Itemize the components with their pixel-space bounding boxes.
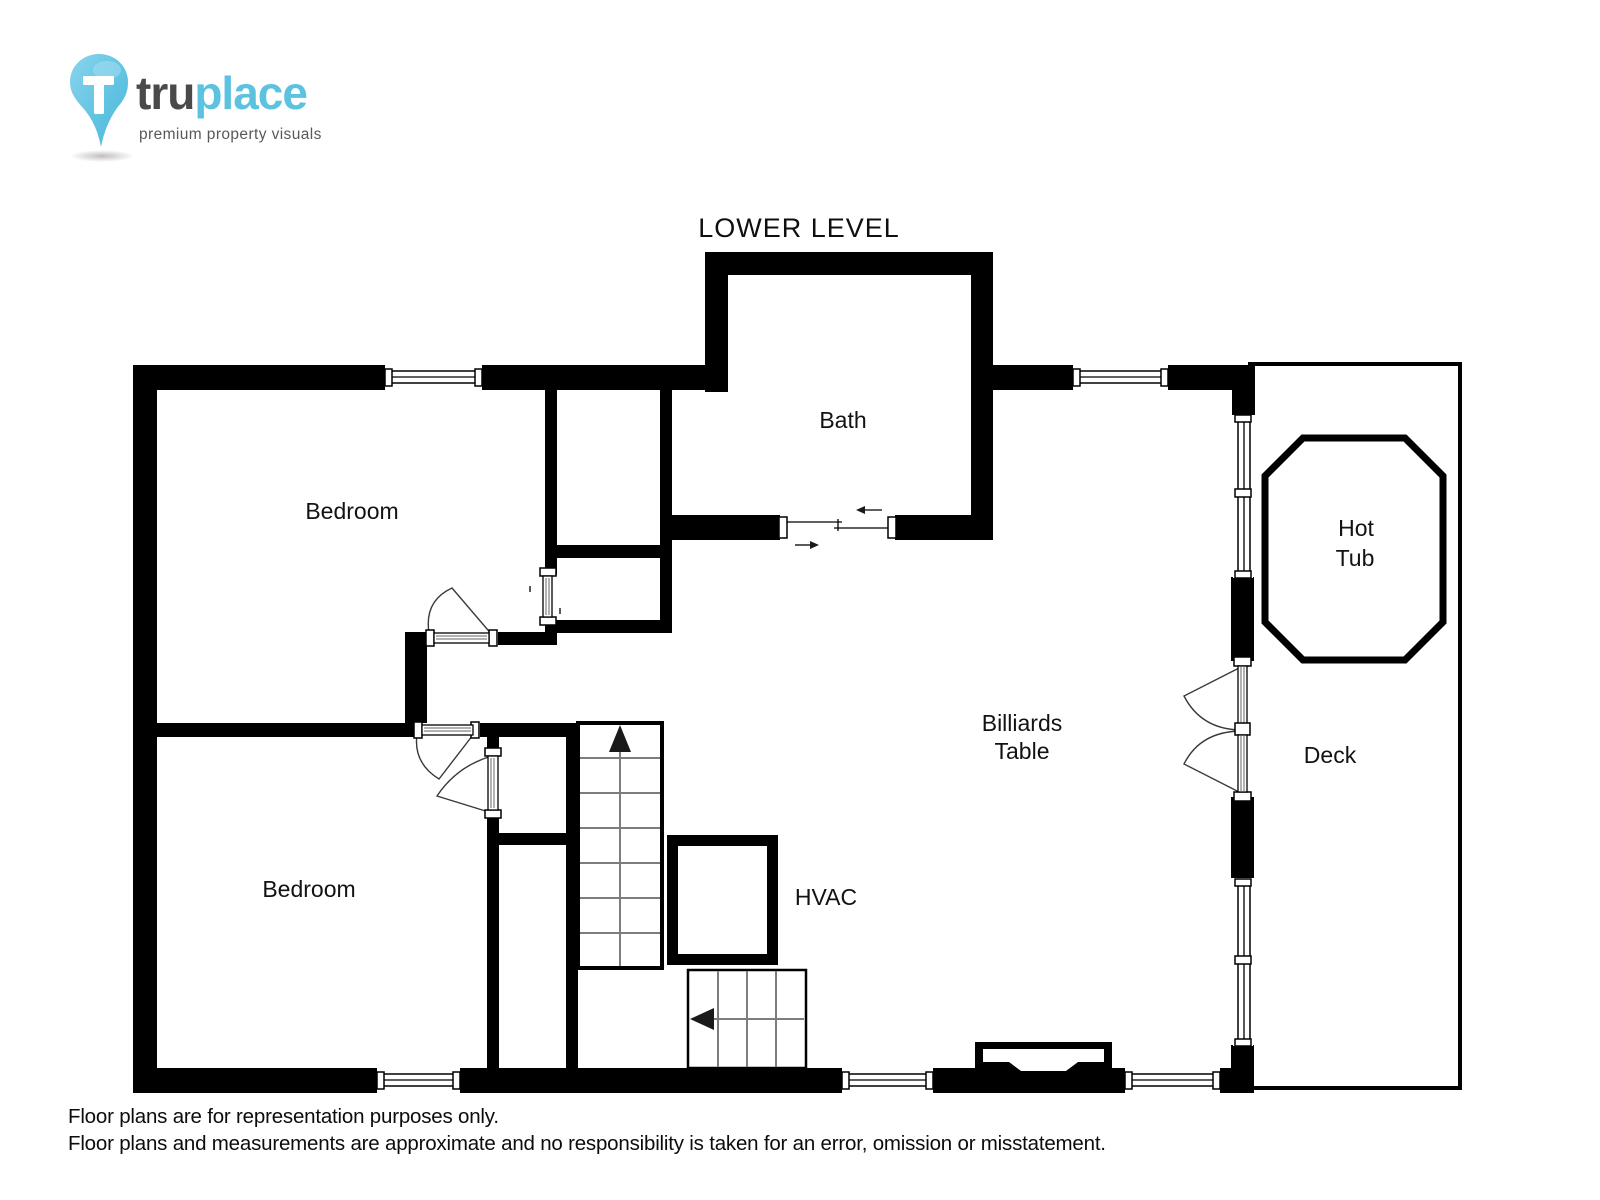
bath-sliding-door [779, 506, 896, 549]
disclaimer-line2: Floor plans and measurements are approxi… [68, 1130, 1106, 1157]
truplace-logo: truplace premium property visuals [64, 50, 484, 170]
door-closet-upper [530, 568, 560, 625]
window [1073, 366, 1168, 389]
window [1125, 1069, 1220, 1092]
room-label-billiards-line2: Table [995, 738, 1050, 764]
brand-part-tru: tru [136, 67, 194, 119]
door-closet-lower [437, 748, 501, 818]
disclaimer: Floor plans are for representation purpo… [68, 1103, 1106, 1157]
window [1233, 415, 1253, 578]
truplace-pin-icon [66, 52, 136, 164]
plan-title: LOWER LEVEL [698, 213, 900, 243]
window [1233, 879, 1253, 1046]
brand-wordmark: truplace [136, 70, 307, 116]
window [385, 366, 482, 389]
floor-plan: LOWER LEVEL Bath Bedroom Bedroom Billiar… [0, 0, 1600, 1200]
room-label-hot-tub-line2: Tub [1336, 545, 1375, 571]
room-label-bedroom-upper: Bedroom [305, 498, 398, 524]
french-door [1184, 657, 1251, 801]
room-label-billiards-line1: Billiards [982, 710, 1063, 736]
window [377, 1069, 460, 1092]
page: LOWER LEVEL Bath Bedroom Bedroom Billiar… [0, 0, 1600, 1200]
fireplace [975, 1042, 1112, 1093]
door-bedroom-upper [426, 588, 497, 646]
room-label-bedroom-lower: Bedroom [262, 876, 355, 902]
stairs-up [578, 723, 662, 968]
room-label-bath: Bath [819, 407, 866, 433]
stairs-lower [688, 970, 806, 1068]
window [842, 1069, 933, 1092]
room-label-hvac: HVAC [795, 884, 857, 910]
brand-part-place: place [194, 67, 307, 119]
room-label-deck: Deck [1304, 742, 1357, 768]
disclaimer-line1: Floor plans are for representation purpo… [68, 1103, 1106, 1130]
room-label-hot-tub-line1: Hot [1338, 515, 1374, 541]
brand-tagline: premium property visuals [139, 126, 322, 144]
door-bedroom-lower [414, 722, 479, 779]
